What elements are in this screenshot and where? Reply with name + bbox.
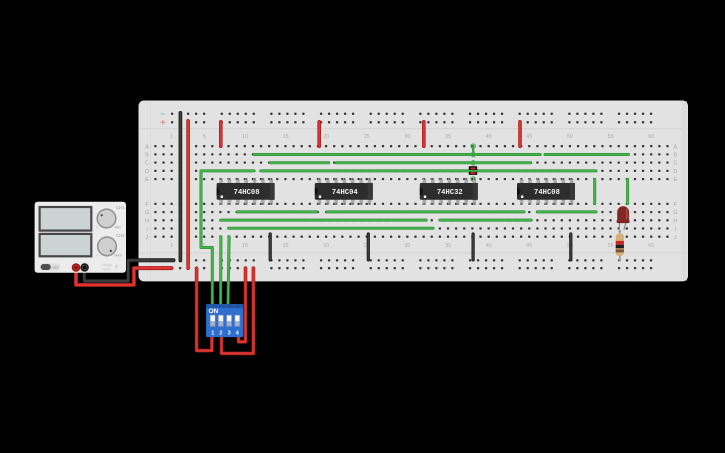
svg-text:10: 10: [242, 134, 248, 140]
svg-text:74HC08: 74HC08: [534, 189, 560, 197]
svg-text:10: 10: [242, 243, 248, 249]
svg-text:35: 35: [445, 243, 451, 249]
svg-text:MAX: MAX: [115, 253, 123, 257]
svg-text:35: 35: [445, 134, 451, 140]
svg-text:A: A: [145, 144, 149, 150]
svg-text:60: 60: [648, 134, 654, 140]
svg-text:A: A: [673, 144, 677, 150]
svg-text:40: 40: [486, 243, 492, 249]
svg-text:OFF: OFF: [52, 266, 60, 270]
svg-text:E: E: [673, 177, 677, 183]
svg-text:74HC08: 74HC08: [234, 189, 260, 197]
svg-text:D: D: [673, 169, 677, 175]
svg-text:74HC32: 74HC32: [437, 189, 463, 197]
svg-text:5: 5: [203, 134, 206, 140]
svg-text:I: I: [97, 253, 98, 257]
svg-text:55: 55: [608, 243, 614, 249]
svg-text:G: G: [673, 210, 677, 216]
svg-text:I: I: [97, 226, 98, 230]
svg-text:C: C: [673, 161, 677, 167]
svg-text:H: H: [145, 218, 149, 224]
svg-text:B: B: [145, 153, 149, 159]
svg-text:30: 30: [404, 134, 410, 140]
svg-text:D: D: [145, 169, 149, 175]
svg-text:40: 40: [486, 134, 492, 140]
svg-text:B: B: [673, 153, 677, 159]
svg-text:1: 1: [170, 243, 173, 249]
svg-text:15: 15: [283, 243, 289, 249]
svg-text:H: H: [673, 218, 677, 224]
svg-text:1: 1: [170, 134, 173, 140]
svg-text:50: 50: [567, 134, 573, 140]
svg-text:4: 4: [236, 331, 239, 337]
svg-text:60: 60: [648, 243, 654, 249]
svg-text:I: I: [146, 227, 148, 233]
svg-text:MIN: MIN: [115, 226, 122, 230]
svg-text:ON: ON: [209, 308, 219, 315]
svg-text:2: 2: [219, 331, 222, 337]
svg-text:J: J: [146, 235, 149, 241]
svg-text:74HC04: 74HC04: [332, 189, 359, 197]
svg-text:supply: supply: [101, 267, 111, 271]
svg-text:30: 30: [404, 243, 410, 249]
svg-text:G: G: [145, 210, 149, 216]
svg-text:CH2: CH2: [116, 233, 125, 238]
svg-text:55: 55: [608, 134, 614, 140]
svg-text:45: 45: [526, 243, 532, 249]
svg-text:45: 45: [526, 134, 532, 140]
svg-text:20: 20: [323, 134, 329, 140]
svg-text:15: 15: [283, 134, 289, 140]
svg-text:1: 1: [211, 331, 214, 337]
svg-text:20: 20: [323, 243, 329, 249]
svg-text:J: J: [674, 235, 677, 241]
svg-text:3: 3: [228, 331, 231, 337]
svg-text:CH1: CH1: [116, 205, 125, 210]
svg-text:25: 25: [364, 134, 370, 140]
svg-text:E: E: [145, 177, 149, 183]
svg-text:C: C: [145, 161, 149, 167]
svg-text:I: I: [675, 227, 677, 233]
